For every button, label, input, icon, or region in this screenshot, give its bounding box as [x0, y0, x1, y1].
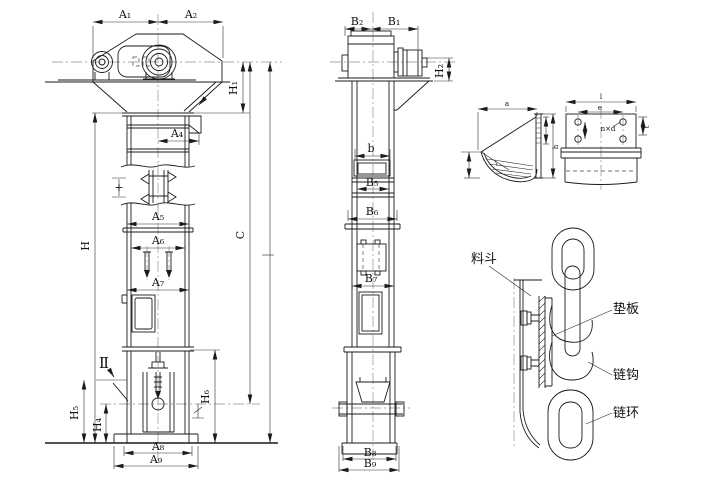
- hook-plate: [545, 298, 552, 386]
- dim-label-c: C: [234, 231, 247, 239]
- gearbox-housing: [118, 46, 170, 77]
- section-mark-2: Ⅱ: [99, 354, 109, 372]
- casing: [122, 113, 194, 351]
- dim-label-bucket-width: a: [505, 100, 509, 108]
- drive-unit: [45, 45, 230, 82]
- dim-label-a9: A₉: [149, 453, 163, 466]
- dim-label-h4: H₄: [91, 417, 104, 432]
- dim-label-a5: A₅: [151, 210, 164, 223]
- dim-label-b5: B₅: [366, 176, 379, 189]
- dim-label-h1: H₁: [227, 81, 240, 95]
- dim-label-b6: B₆: [366, 205, 379, 218]
- label-chain-link: 链环: [613, 406, 639, 421]
- dim-label-a7: A₇: [151, 276, 165, 289]
- dim-label-b7: B₇: [365, 272, 378, 285]
- side-elevation-view: B₂ B₁ H₂ b B: [330, 12, 455, 472]
- bucket-wall: [514, 280, 542, 448]
- chain-pitch-mark: +: [114, 181, 123, 194]
- bucket-side-detail: a h: [461, 100, 560, 182]
- dim-label-bucket-height: h: [552, 144, 560, 149]
- drive-platform: [45, 80, 230, 82]
- section-arrow: [109, 369, 114, 377]
- label-pad-plate: 垫板: [613, 301, 639, 317]
- dim-label-b: b: [367, 142, 374, 155]
- drawing-page: A₁ A₂: [0, 0, 720, 500]
- pad-plate: [539, 296, 545, 388]
- discharge-flow-arrow: [199, 97, 206, 105]
- chain-link-bottom: [548, 390, 593, 460]
- dim-label-a4: A₄: [170, 127, 184, 140]
- inspection-door-side: [359, 292, 382, 334]
- dim-label-h2: H₂: [433, 64, 446, 78]
- dim-label-hole-spacing: e: [598, 104, 602, 112]
- takeup-guides: [143, 372, 174, 432]
- boot-side: [339, 352, 404, 454]
- dim-label-b9: B₉: [364, 457, 377, 470]
- bucket-elevator-technical-drawing: A₁ A₂: [0, 0, 720, 500]
- boot-section: [96, 351, 204, 443]
- motor: [403, 50, 422, 76]
- dim-label-h: H: [79, 241, 92, 251]
- platform: [335, 78, 433, 81]
- casing-break-window: +: [112, 164, 195, 208]
- chain-attachment-detail: 料斗 垫板 链钩 链环: [471, 228, 639, 460]
- dim-label-a8: A₈: [151, 440, 165, 453]
- chain-guide-block: [357, 240, 386, 275]
- chain-link-top: [552, 228, 594, 290]
- bucket-scoop-profile: [481, 117, 537, 182]
- front-elevation-view: A₁ A₂: [45, 8, 282, 469]
- dim-label-a2: A₂: [184, 8, 197, 21]
- discharge-spout: [189, 116, 201, 133]
- bolt-lower: [521, 356, 539, 370]
- chain-hook: [550, 305, 593, 380]
- dim-label-a1: A₁: [118, 8, 131, 21]
- label-bucket: 料斗: [471, 252, 497, 267]
- dim-label-a6: A₆: [151, 234, 165, 247]
- label-chain-hook: 链钩: [613, 368, 639, 383]
- dim-label-b2: B₂: [351, 15, 364, 28]
- dim-label-plate-width: l: [600, 93, 603, 101]
- dim-label-b1: B₁: [388, 15, 401, 28]
- bucket-front-detail: l e n×d t: [561, 93, 651, 190]
- dim-label-h6: H₆: [199, 389, 212, 404]
- dim-label-edge: t: [643, 125, 651, 128]
- bucket-back-plate: [534, 114, 543, 178]
- bolt-upper: [521, 311, 539, 325]
- dim-label-h5: H₅: [68, 406, 81, 420]
